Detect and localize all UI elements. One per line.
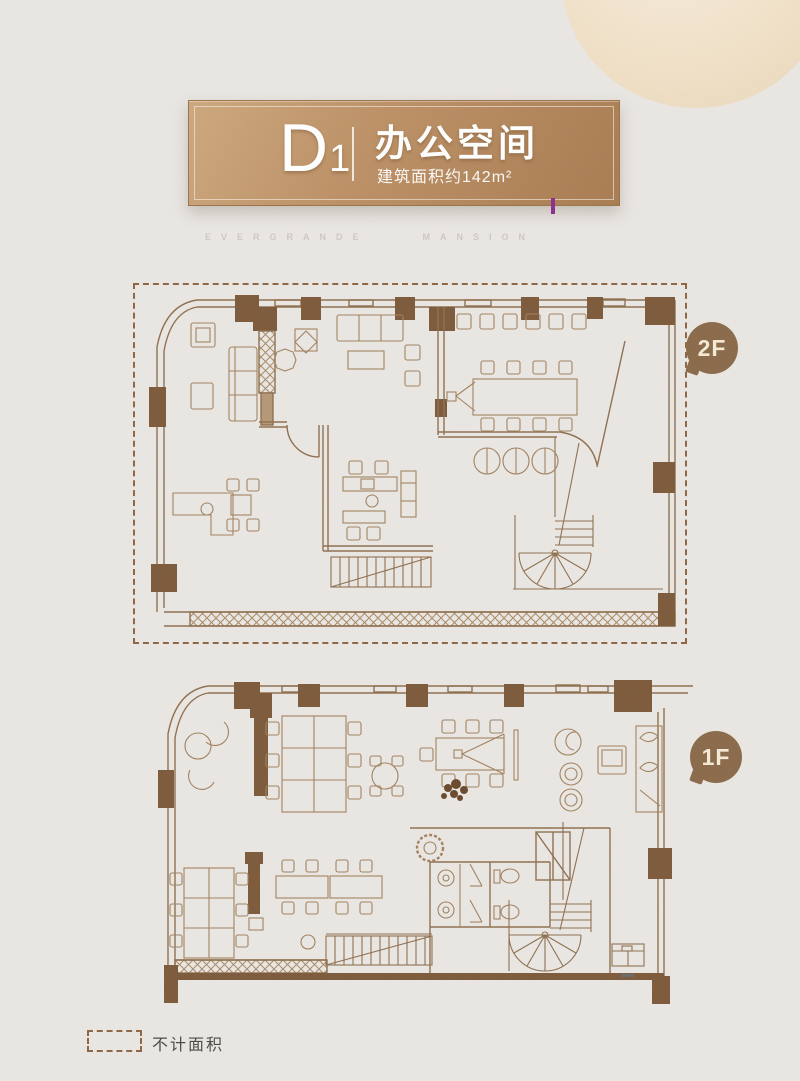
wreath-plant — [417, 835, 443, 861]
sofa — [337, 315, 403, 341]
spiral-staircase — [513, 437, 663, 589]
floor-1f-badge: 1F — [690, 731, 742, 783]
straight-staircase — [331, 557, 431, 587]
door-arc — [287, 425, 319, 457]
unit-code: D1 — [279, 109, 351, 187]
unit-number: 1 — [329, 138, 351, 180]
projection-screen — [514, 730, 518, 780]
plaque-title: 办公空间 — [375, 113, 539, 167]
watermark-left: EVERGRANDE — [205, 232, 369, 242]
unit-letter: D — [279, 110, 329, 186]
floor-2f-label: 2F — [698, 335, 727, 362]
elevator-shaft — [259, 331, 275, 393]
interior-walls — [410, 828, 610, 973]
legend-label: 不计面积 — [152, 1031, 224, 1055]
tiny-label-mark — [621, 974, 634, 977]
decorative-circle — [562, 0, 800, 108]
diagonal-wall — [597, 341, 625, 467]
watermark-right: MANSION — [423, 232, 536, 242]
floorplan-2f — [135, 285, 685, 642]
floorplan-1f — [148, 672, 708, 1005]
watermark: EVERGRANDE MANSION — [205, 232, 535, 242]
floor-2f-badge: 2F — [686, 322, 738, 374]
floor2-dashed-outline — [133, 283, 687, 644]
furniture-2f — [173, 314, 586, 540]
plaque-subtitle: 建筑面积约142m² — [377, 163, 512, 187]
plant — [441, 779, 468, 801]
corner-accent — [545, 134, 637, 222]
projector — [447, 392, 456, 401]
plaque-divider — [352, 127, 354, 181]
floor-1f-label: 1F — [702, 744, 731, 771]
legend-dashed-swatch — [87, 1030, 142, 1052]
conference-table — [473, 379, 577, 415]
conference-table — [436, 738, 504, 770]
equipment-box — [612, 944, 644, 977]
interior-walls — [259, 307, 625, 551]
straight-staircase — [326, 934, 432, 965]
wall-piers — [158, 680, 672, 1004]
page-root: D1 办公空间 建筑面积约142m² EVERGRANDE MANSION — [0, 0, 800, 1081]
projector — [454, 750, 462, 758]
lounge-table — [185, 733, 211, 759]
furniture-1f — [170, 716, 662, 958]
wall-stub — [254, 696, 268, 796]
